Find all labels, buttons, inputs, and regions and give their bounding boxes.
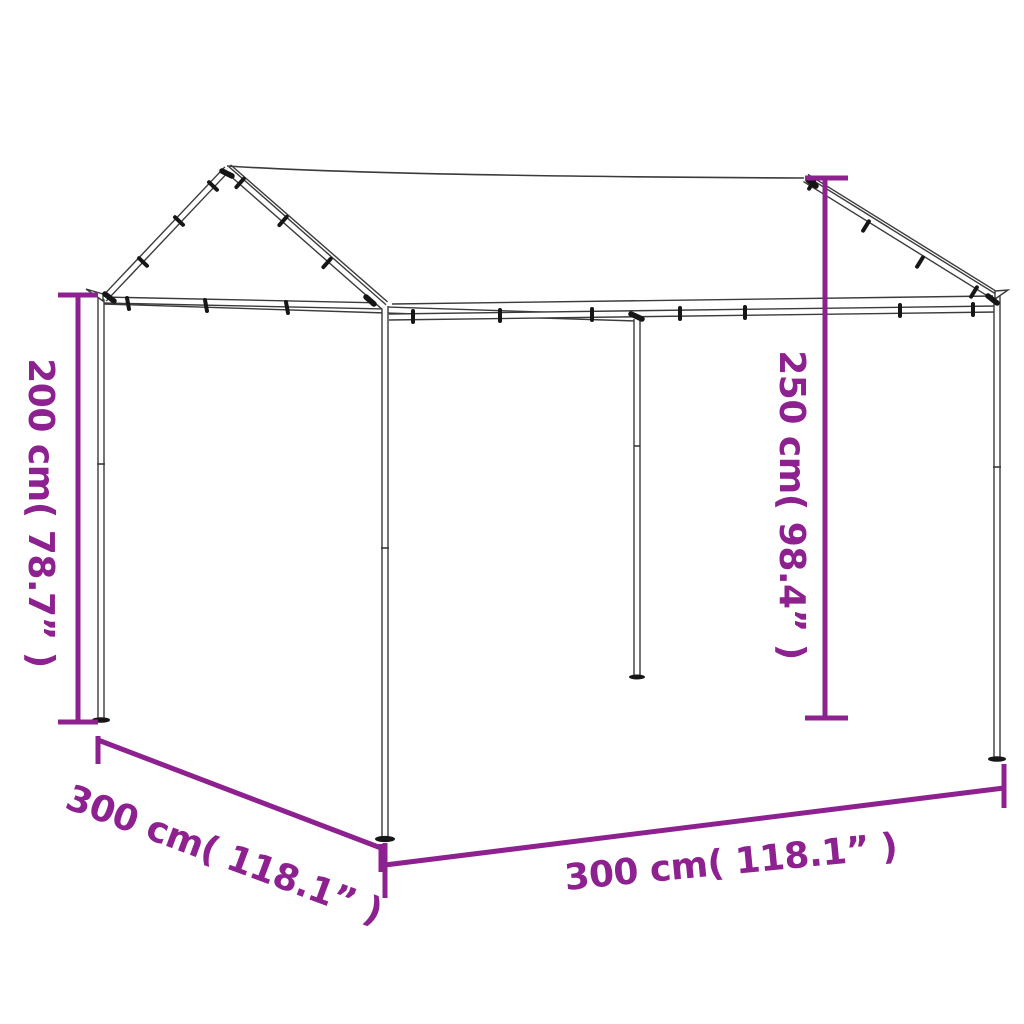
clamp-icon: [286, 302, 288, 313]
dimension-right-height: 250 cm( 98.4” ): [771, 178, 848, 718]
dimension-width: 300 cm( 118.1” ): [385, 764, 1004, 899]
dimension-left-height: 200 cm( 78.7” ): [20, 295, 98, 722]
rafter-front-right: [227, 169, 384, 307]
depth-label: 300 cm( 118.1” ): [60, 778, 387, 933]
fabric-corner-tip-right: [995, 290, 1008, 299]
roof-canopy: [86, 165, 1008, 304]
clamp-icon: [323, 259, 330, 267]
tent-frame: [101, 169, 997, 837]
clamp-icon: [127, 298, 129, 309]
fabric-edge-right-gable: [808, 174, 998, 292]
leg-foot: [988, 756, 1006, 762]
fabric-eave-edge: [392, 296, 993, 304]
clamp-icon: [863, 221, 869, 230]
fabric-edge-front-slope: [231, 165, 388, 302]
clamp-icon: [917, 257, 923, 266]
leg-foot: [375, 836, 395, 842]
dimension-diagram-canvas: 200 cm( 78.7” ) 250 cm( 98.4” ) 300 cm( …: [0, 0, 1024, 1024]
rafter-back-right: [805, 179, 995, 297]
leg-foot: [629, 675, 645, 680]
frame-fittings: [92, 171, 1006, 842]
left-height-label: 200 cm( 78.7” ): [20, 358, 61, 668]
clamp-icon: [205, 300, 207, 311]
ridge-line: [227, 166, 804, 178]
rafter-front-left: [104, 169, 227, 299]
right-height-label: 250 cm( 98.4” ): [771, 350, 812, 660]
canopy-tent-drawing: 200 cm( 78.7” ) 250 cm( 98.4” ) 300 cm( …: [0, 0, 1024, 1024]
clamp-icon: [971, 287, 977, 296]
dimension-depth: 300 cm( 118.1” ): [60, 736, 387, 933]
